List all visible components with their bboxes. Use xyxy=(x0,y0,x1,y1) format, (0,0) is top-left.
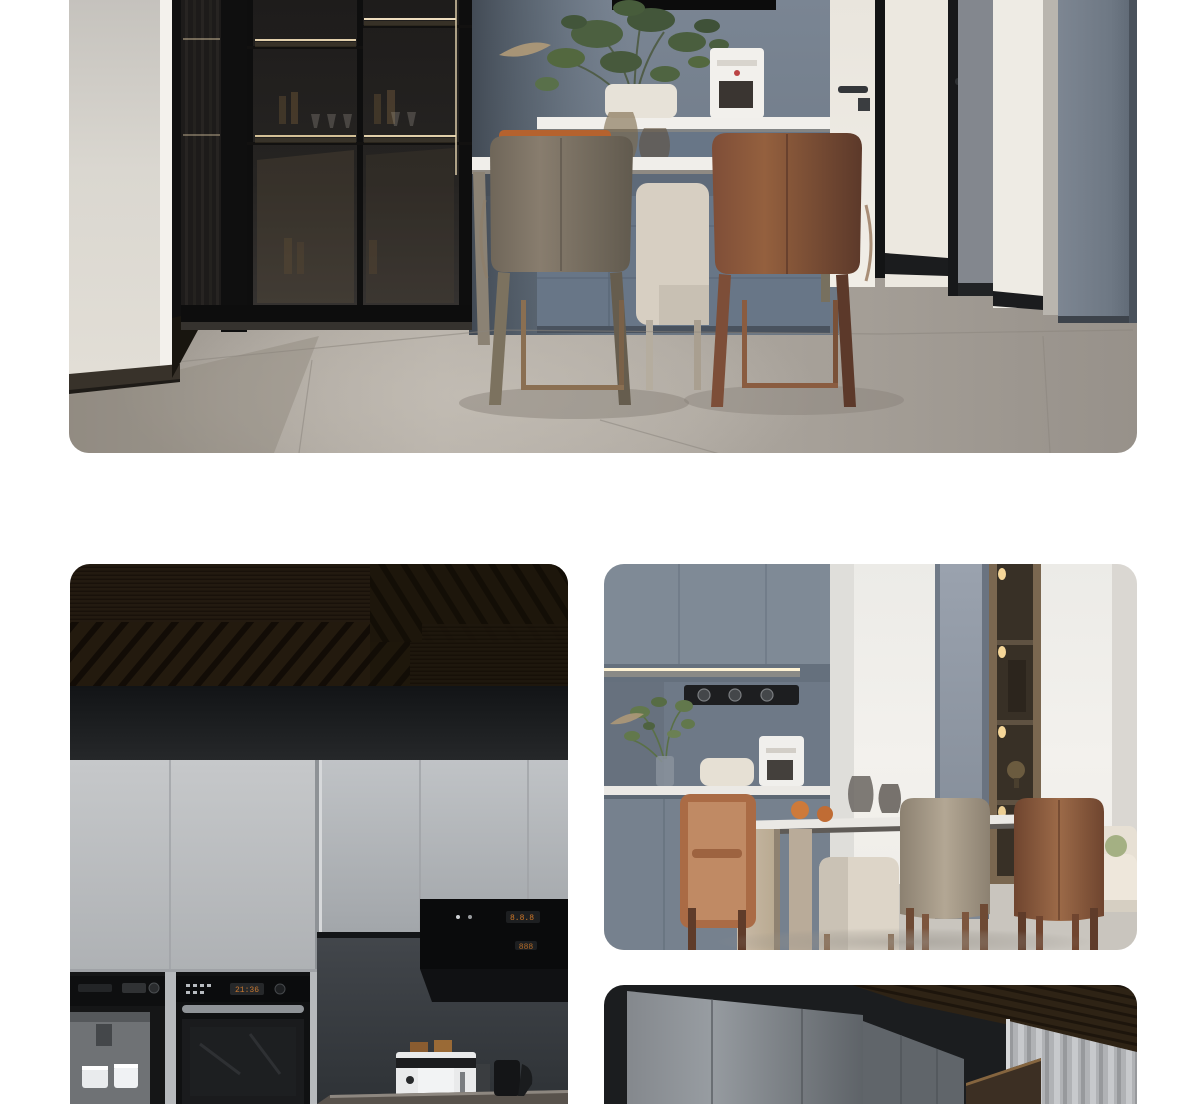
svg-text:8.8.8: 8.8.8 xyxy=(510,914,534,923)
svg-text:888: 888 xyxy=(519,943,534,952)
svg-text:21:36: 21:36 xyxy=(235,986,259,995)
